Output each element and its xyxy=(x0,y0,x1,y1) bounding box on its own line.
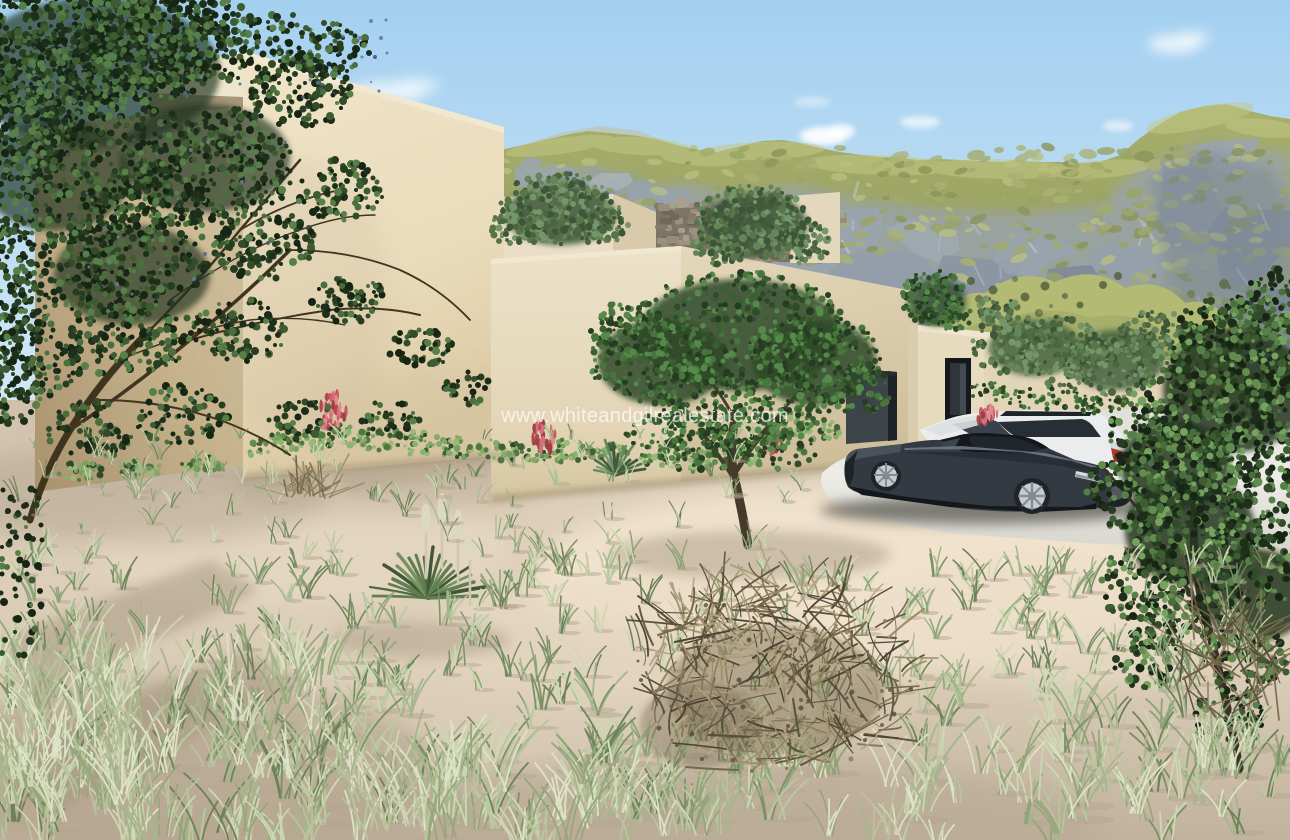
svg-text:www.whiteandgilrealestate.com: www.whiteandgilrealestate.com xyxy=(500,405,789,427)
